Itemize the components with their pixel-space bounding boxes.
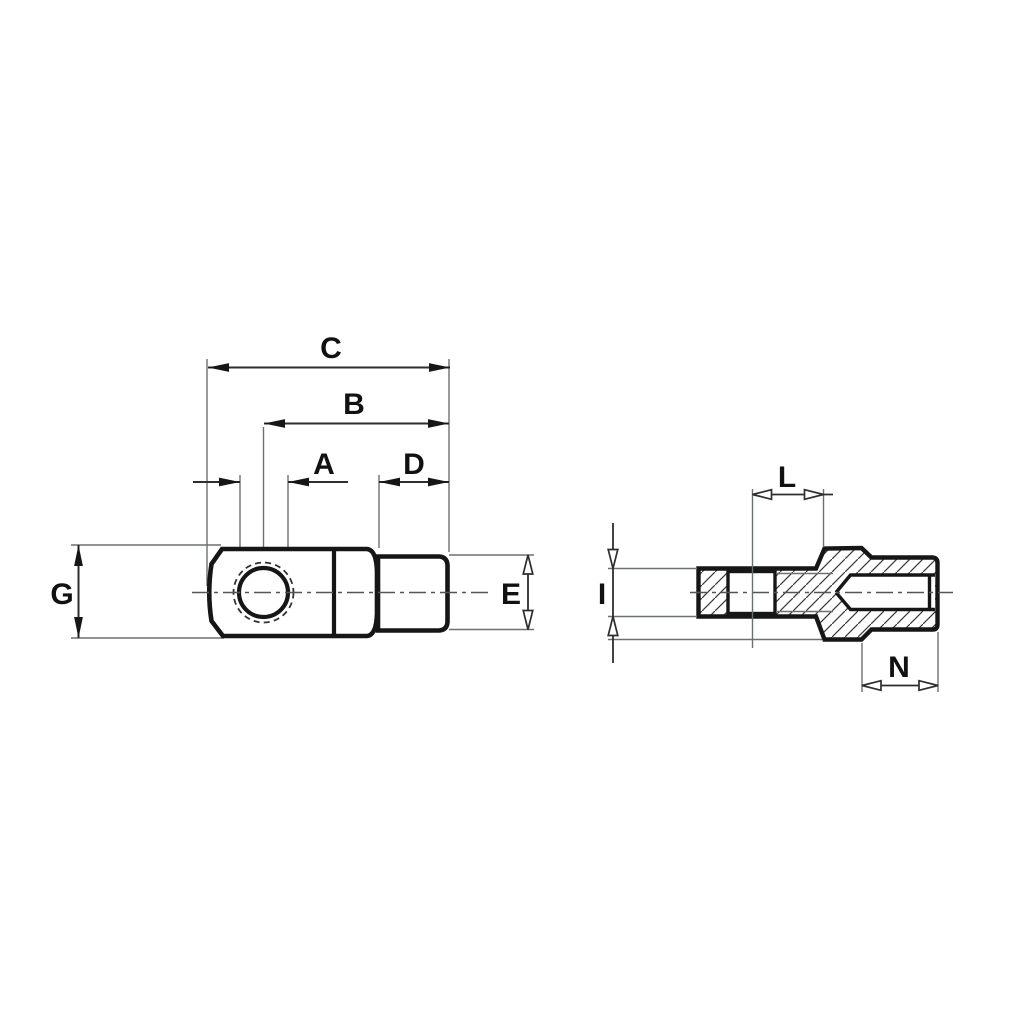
dim-label-g: G [50,578,73,611]
dim-label-i: I [598,578,606,611]
dimension-a: A [193,448,348,486]
dim-label-e: E [501,578,521,611]
dimension-d: D [379,448,449,486]
side-view: L I N [598,461,953,692]
dimension-l: L [753,461,834,499]
dimension-n: N [862,651,938,690]
dim-label-c: C [320,332,342,365]
dimension-c: C [208,332,450,372]
front-view: C B A D G [50,332,534,638]
dimension-e: E [501,555,533,630]
dimension-i: I [598,523,618,663]
technical-drawing-canvas: C B A D G [0,0,1024,1024]
dim-label-n: N [888,651,910,684]
dim-label-l: L [778,461,796,494]
dim-label-a: A [313,448,335,481]
clevis-two-view-drawing: C B A D G [0,0,1024,1024]
threaded-stub-outline [378,557,448,631]
dimension-g: G [50,545,83,638]
dim-label-b: B [343,388,365,421]
dim-label-d: D [403,448,425,481]
dimension-b: B [264,388,449,428]
